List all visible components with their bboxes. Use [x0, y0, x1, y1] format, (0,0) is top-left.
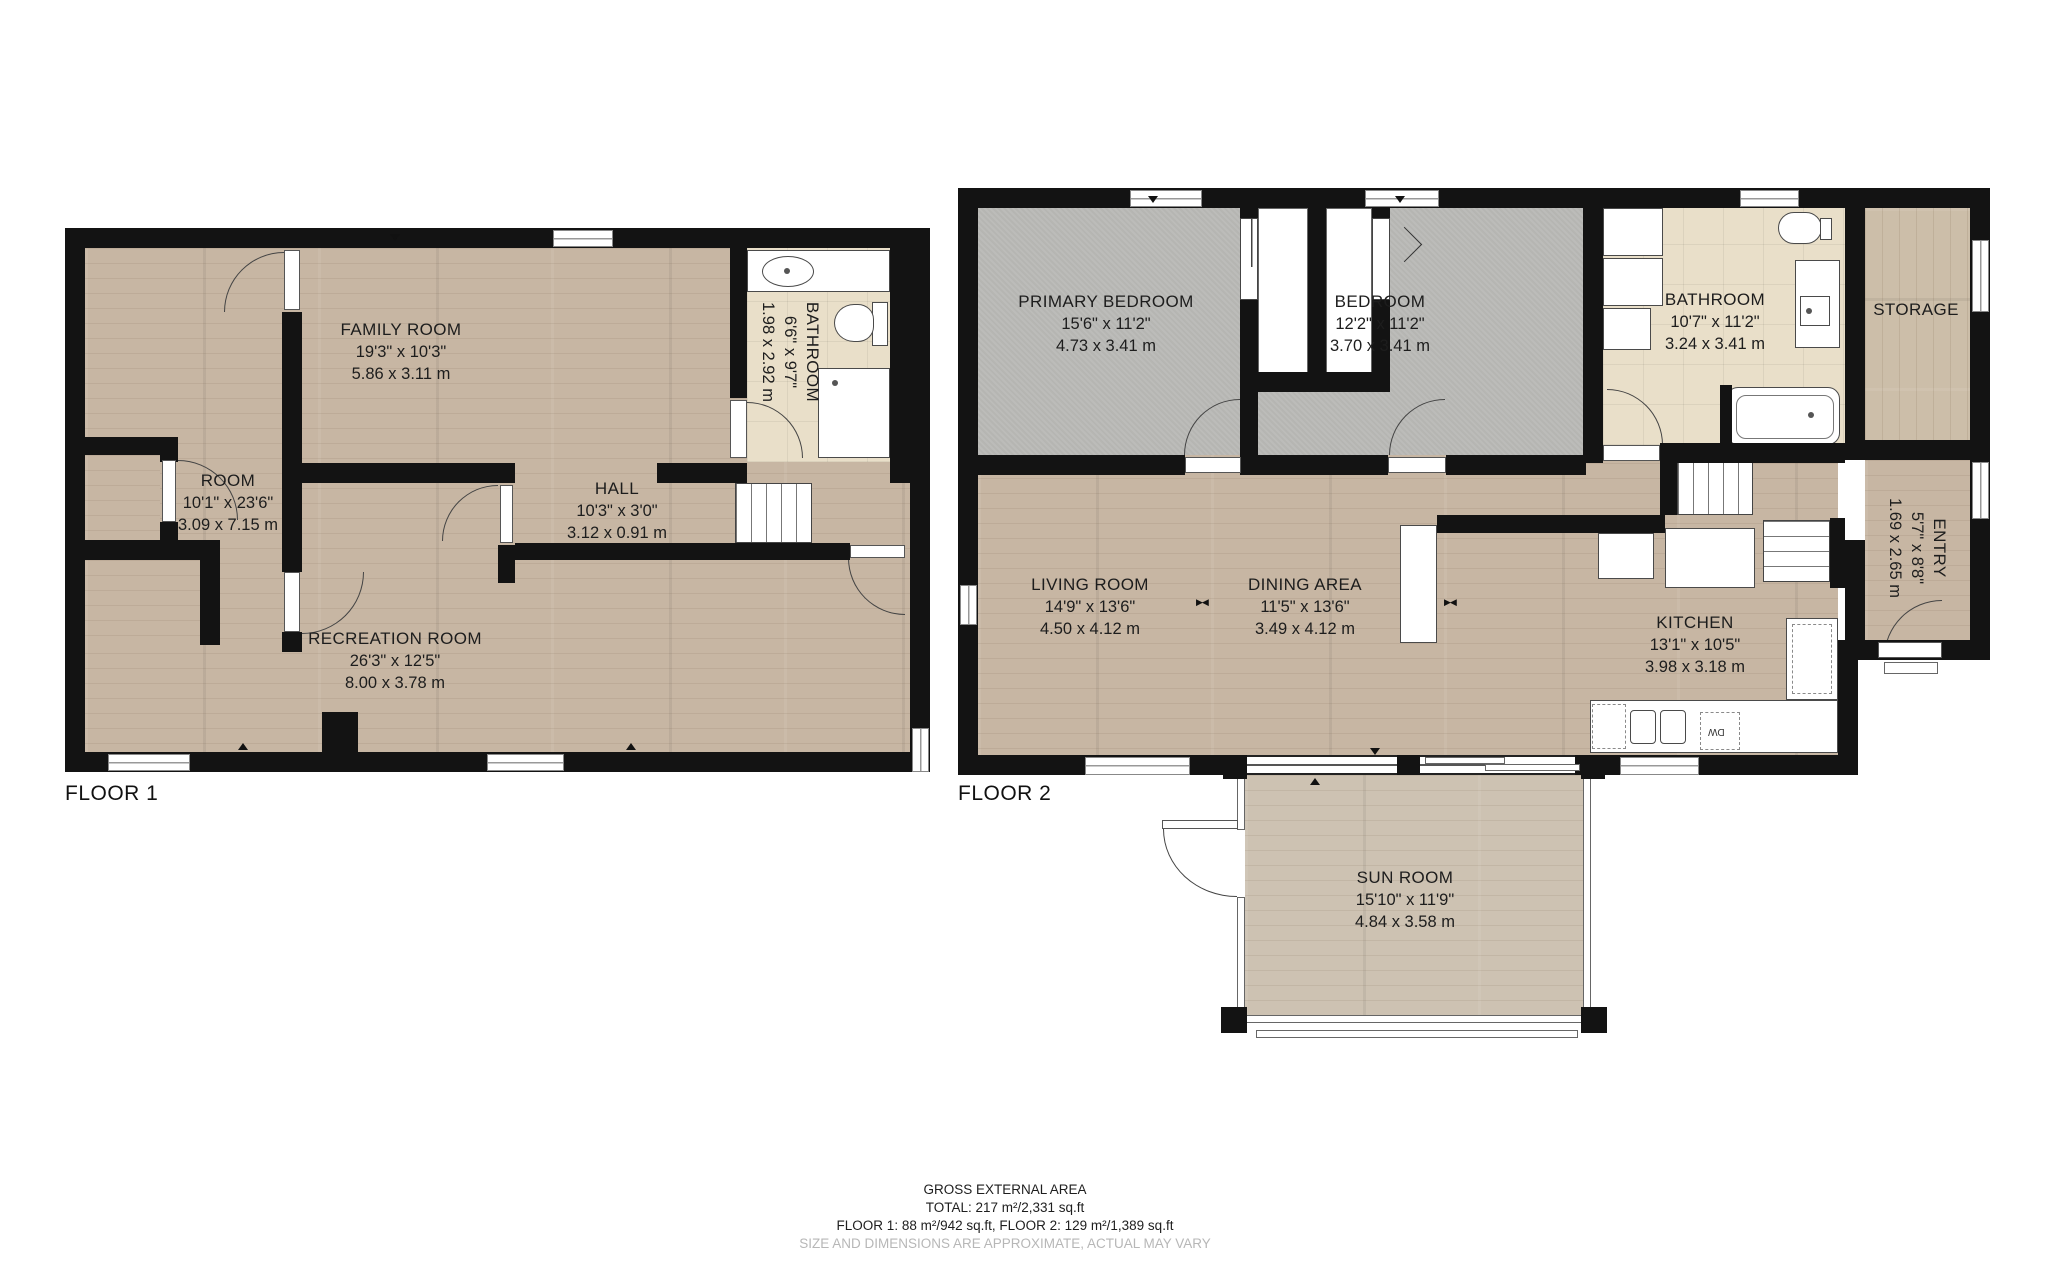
sliding-closet-door	[1240, 218, 1258, 300]
room-label-kitchen: KITCHEN 13'1" x 10'5" 3.98 x 3.18 m	[1645, 612, 1745, 678]
wall	[200, 540, 220, 645]
room-dim-imperial: 5'7" x 8'8"	[1906, 498, 1928, 598]
room-name: BEDROOM	[1330, 291, 1430, 313]
wall	[1240, 188, 1258, 218]
room-label-storage: STORAGE	[1873, 299, 1959, 321]
door-leaf	[1603, 445, 1660, 461]
door-leaf	[284, 572, 300, 632]
room-name: ROOM	[178, 470, 278, 492]
storage-floor	[1865, 208, 1970, 440]
wall	[302, 463, 515, 483]
floor2-label: FLOOR 2	[958, 782, 1051, 806]
room-label-living-room: LIVING ROOM 14'9" x 13'6" 4.50 x 4.12 m	[1031, 574, 1149, 640]
room-dim-imperial: 19'3" x 10'3"	[341, 341, 462, 363]
direction-marker	[390, 234, 400, 241]
wall	[958, 188, 1990, 208]
wall	[1446, 455, 1586, 475]
window	[1085, 757, 1190, 775]
window	[1620, 757, 1699, 775]
window	[553, 230, 613, 247]
window	[1972, 462, 1989, 519]
room-label-room: ROOM 10'1" x 23'6" 3.09 x 7.15 m	[178, 470, 278, 536]
room-dim-imperial: 10'7" x 11'2"	[1665, 311, 1765, 333]
room-name: ENTRY	[1928, 498, 1950, 598]
toilet-bowl	[834, 304, 874, 342]
wall	[1660, 457, 1677, 515]
wall	[515, 543, 850, 560]
sunroom-window-wall	[1237, 1015, 1591, 1023]
corner-post	[1221, 1007, 1247, 1033]
kitchen-sink-basin	[1630, 710, 1656, 744]
wall-post	[1397, 755, 1420, 775]
sunroom-step-edge	[1256, 1030, 1578, 1038]
window	[108, 754, 190, 771]
disclaimer: SIZE AND DIMENSIONS ARE APPROXIMATE, ACT…	[799, 1235, 1211, 1253]
bathroom2-sink	[1800, 296, 1830, 326]
wall	[958, 188, 978, 775]
direction-marker	[1310, 778, 1320, 785]
room-dim-imperial: 11'5" x 13'6"	[1248, 596, 1362, 618]
wall	[1240, 372, 1390, 392]
wall	[910, 228, 930, 772]
room-dim-metric: 8.00 x 3.78 m	[308, 672, 482, 694]
direction-marker	[626, 743, 636, 750]
direction-marker	[1395, 196, 1405, 203]
room-dim-metric: 3.09 x 7.15 m	[178, 514, 278, 536]
room-dim-metric: 3.98 x 3.18 m	[1645, 656, 1745, 678]
room-label-sun-room: SUN ROOM 15'10" x 11'9" 4.84 x 3.58 m	[1355, 867, 1455, 933]
wall	[1660, 443, 1845, 463]
stove	[1598, 533, 1654, 579]
kitchen-sink-basin	[1660, 710, 1686, 744]
wall	[160, 437, 178, 462]
room-name: SUN ROOM	[1355, 867, 1455, 889]
sliding-glass-door	[1425, 757, 1505, 764]
room-dim-imperial: 14'9" x 13'6"	[1031, 596, 1149, 618]
room-dim-imperial: 12'2" x 11'2"	[1330, 313, 1430, 335]
footer-area-summary: GROSS EXTERNAL AREA TOTAL: 217 m²/2,331 …	[799, 1181, 1211, 1253]
door-leaf	[1185, 457, 1241, 473]
room-dim-imperial: 15'6" x 11'2"	[1018, 313, 1193, 335]
room-dim-metric: 1.98 x 2.92 m	[757, 302, 779, 402]
bathroom2-sink-drain	[1806, 308, 1812, 314]
wall	[160, 522, 178, 540]
wall	[730, 248, 747, 398]
sunroom-window-wall	[1237, 897, 1245, 1017]
wall	[1845, 540, 1865, 660]
bifold-closet-door	[1372, 218, 1390, 300]
floor1-label: FLOOR 1	[65, 782, 158, 806]
wall	[1830, 518, 1845, 588]
floor1-nook	[85, 560, 200, 645]
wall	[1720, 385, 1732, 443]
bathroom2-cabinet	[1603, 258, 1663, 306]
kitchen-cabinet-dashed	[1592, 704, 1626, 749]
sunroom-window-wall	[1583, 775, 1591, 1017]
room-dim-metric: 4.73 x 3.41 m	[1018, 335, 1193, 357]
bathroom2-cabinet	[1603, 208, 1663, 256]
window	[912, 728, 929, 772]
room-label-entry: ENTRY 5'7" x 8'8" 1.69 x 2.65 m	[1884, 498, 1950, 598]
room-label-family-room: FAMILY ROOM 19'3" x 10'3" 5.86 x 3.11 m	[341, 319, 462, 385]
floor2-staircase-lower	[1763, 520, 1830, 582]
wall	[657, 463, 747, 483]
floor2-staircase-upper	[1677, 457, 1753, 515]
wall	[978, 455, 1185, 475]
wall	[1437, 515, 1665, 533]
wall	[65, 228, 930, 248]
kitchen-upper-cabinet-dashed	[1792, 624, 1832, 694]
wall	[1838, 640, 1858, 775]
wall	[1845, 188, 1865, 460]
window	[487, 754, 564, 771]
room-name: HALL	[567, 478, 667, 500]
window	[1740, 190, 1799, 207]
door-leaf	[730, 400, 747, 458]
room-name: PRIMARY BEDROOM	[1018, 291, 1193, 313]
kitchen-peninsula-counter	[1400, 525, 1437, 643]
door-leaf	[500, 485, 513, 543]
closet	[1258, 208, 1308, 374]
floorplan-canvas: FAMILY ROOM 19'3" x 10'3" 5.86 x 3.11 m …	[0, 0, 2048, 1279]
room-dim-metric: 1.69 x 2.65 m	[1884, 498, 1906, 598]
shower	[818, 368, 890, 458]
direction-marker	[1370, 748, 1380, 755]
entry-step	[1884, 662, 1938, 674]
room-name: KITCHEN	[1645, 612, 1745, 634]
chimney-block	[322, 712, 358, 752]
wall	[65, 540, 220, 560]
wall	[890, 228, 910, 483]
room-label-hall: HALL 10'3" x 3'0" 3.12 x 0.91 m	[567, 478, 667, 544]
door-leaf	[284, 250, 300, 310]
toilet-bowl	[1778, 212, 1822, 244]
room-label-bedroom: BEDROOM 12'2" x 11'2" 3.70 x 3.41 m	[1330, 291, 1430, 357]
room-name: FAMILY ROOM	[341, 319, 462, 341]
bathroom2-cabinet	[1603, 308, 1651, 350]
wall	[65, 228, 85, 772]
sunroom-door-leaf	[1162, 820, 1238, 829]
door-arc	[1163, 829, 1237, 897]
room-dim-imperial: 6'6" x 9'7"	[779, 302, 801, 402]
wall	[1308, 188, 1326, 392]
direction-marker	[238, 743, 248, 750]
room-name: BATHROOM	[801, 302, 823, 402]
bathroom1-sink-drain	[784, 268, 790, 274]
corner-post	[1581, 1007, 1607, 1033]
dishwasher-label: DW	[1708, 726, 1725, 737]
area-divider-icon: ▶◀	[1444, 597, 1456, 608]
room-label-primary-bedroom: PRIMARY BEDROOM 15'6" x 11'2" 4.73 x 3.4…	[1018, 291, 1193, 357]
corner-post	[1223, 755, 1247, 779]
room-dim-metric: 3.70 x 3.41 m	[1330, 335, 1430, 357]
wall	[498, 545, 515, 583]
toilet-tank	[1820, 218, 1832, 240]
room-label-dining-area: DINING AREA 11'5" x 13'6" 3.49 x 4.12 m	[1248, 574, 1362, 640]
gross-external-area-title: GROSS EXTERNAL AREA	[799, 1181, 1211, 1199]
toilet-tank	[872, 302, 888, 346]
room-label-recreation-room: RECREATION ROOM 26'3" x 12'5" 8.00 x 3.7…	[308, 628, 482, 694]
room-dim-imperial: 10'3" x 3'0"	[567, 500, 667, 522]
direction-marker	[1148, 196, 1158, 203]
room-dim-metric: 4.84 x 3.58 m	[1355, 911, 1455, 933]
entry-door-leaf	[1878, 642, 1942, 658]
room-name: STORAGE	[1873, 299, 1959, 321]
window	[1972, 240, 1989, 312]
room-label-bathroom-floor2: BATHROOM 10'7" x 11'2" 3.24 x 3.41 m	[1665, 289, 1765, 355]
room-name: BATHROOM	[1665, 289, 1765, 311]
floor1-staircase	[735, 483, 812, 543]
wall	[1583, 188, 1603, 463]
total-area: TOTAL: 217 m²/2,331 sq.ft	[799, 1199, 1211, 1217]
wall	[282, 632, 302, 652]
room-dim-metric: 5.86 x 3.11 m	[341, 363, 462, 385]
room-dim-metric: 3.49 x 4.12 m	[1248, 618, 1362, 640]
door-leaf	[1388, 457, 1446, 473]
sliding-glass-door	[1485, 764, 1580, 771]
room-dim-imperial: 26'3" x 12'5"	[308, 650, 482, 672]
shower-head	[832, 380, 838, 386]
room-name: DINING AREA	[1248, 574, 1362, 596]
per-floor-areas: FLOOR 1: 88 m²/942 sq.ft, FLOOR 2: 129 m…	[799, 1217, 1211, 1235]
bathtub-inner	[1736, 395, 1834, 439]
room-dim-metric: 3.24 x 3.41 m	[1665, 333, 1765, 355]
kitchen-corner-counter	[1665, 528, 1755, 588]
door-leaf	[850, 545, 905, 558]
area-divider-icon: ▶◀	[1196, 597, 1208, 608]
floor1-closet	[85, 455, 160, 540]
room-dim-imperial: 10'1" x 23'6"	[178, 492, 278, 514]
wall	[1258, 455, 1388, 475]
wall	[282, 312, 302, 572]
sunroom-window-wall	[1237, 775, 1245, 830]
room-name: RECREATION ROOM	[308, 628, 482, 650]
window	[1130, 190, 1202, 207]
room-dim-metric: 3.12 x 0.91 m	[567, 522, 667, 544]
door-leaf	[162, 460, 176, 522]
corner-post	[1581, 755, 1605, 779]
room-dim-metric: 4.50 x 4.12 m	[1031, 618, 1149, 640]
wall	[1845, 440, 1990, 460]
room-dim-imperial: 13'1" x 10'5"	[1645, 634, 1745, 656]
room-dim-imperial: 15'10" x 11'9"	[1355, 889, 1455, 911]
room-label-bathroom-floor1: BATHROOM 6'6" x 9'7" 1.98 x 2.92 m	[757, 302, 823, 402]
bathtub-drain	[1808, 412, 1814, 418]
window	[960, 585, 977, 625]
room-name: LIVING ROOM	[1031, 574, 1149, 596]
